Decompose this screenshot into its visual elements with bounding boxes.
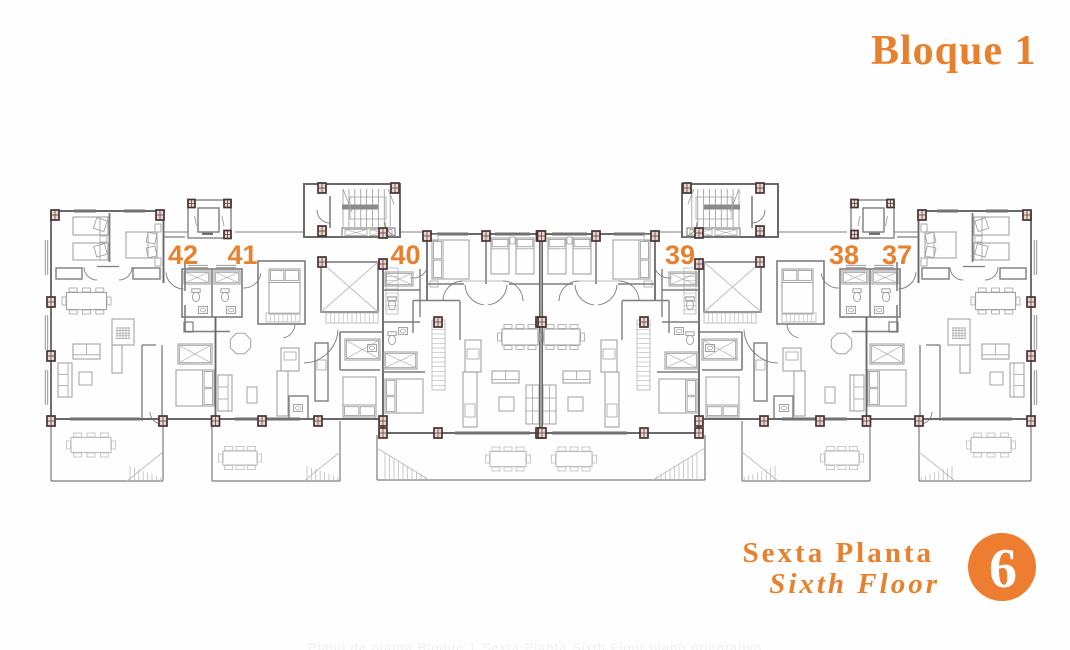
svg-text:Plano de planta Bloque 1 Sexta: Plano de planta Bloque 1 Sexta Planta Si… [308,640,762,650]
svg-text:42: 42 [168,240,198,270]
svg-text:39: 39 [665,240,695,270]
svg-text:6: 6 [989,538,1017,600]
svg-text:37: 37 [882,240,912,270]
svg-text:Sixth Floor: Sixth Floor [769,568,940,600]
svg-text:41: 41 [227,240,257,270]
svg-text:Sexta Planta: Sexta Planta [743,537,934,569]
svg-text:38: 38 [829,240,859,270]
svg-text:40: 40 [390,240,420,270]
svg-text:Bloque 1: Bloque 1 [871,28,1037,74]
